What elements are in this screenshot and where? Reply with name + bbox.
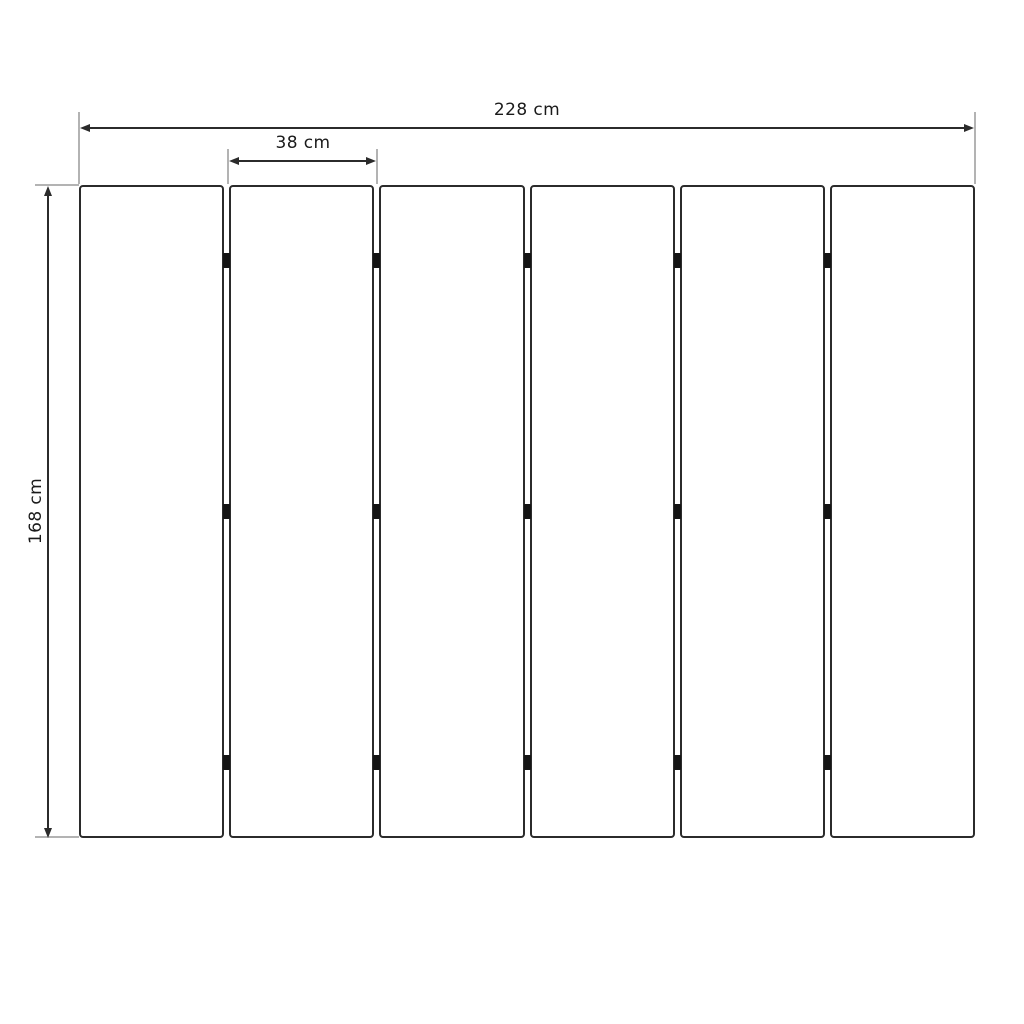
extension-line-right: [974, 112, 976, 184]
dimension-label-panel-width: 38 cm: [228, 133, 378, 153]
hinge-mark: [824, 504, 831, 519]
hinge-mark: [674, 253, 681, 268]
hinge-mark: [824, 253, 831, 268]
extension-line-left: [78, 112, 80, 184]
arrowhead-left-icon: [229, 157, 239, 165]
extension-line-bottom: [35, 836, 79, 838]
dimension-line-total-width: [84, 127, 970, 129]
hinge-mark: [373, 755, 380, 770]
arrowhead-down-icon: [44, 828, 52, 838]
hinge-mark: [524, 755, 531, 770]
hinge-mark: [824, 755, 831, 770]
hinge-mark: [223, 253, 230, 268]
hinge-mark: [373, 504, 380, 519]
hinge-mark: [674, 504, 681, 519]
dimension-line-panel-width: [233, 160, 372, 162]
arrowhead-left-icon: [80, 124, 90, 132]
panel-6: [830, 185, 975, 838]
hinge-mark: [373, 253, 380, 268]
hinge-mark: [674, 755, 681, 770]
panel-3: [379, 185, 524, 838]
hinge-mark: [524, 253, 531, 268]
hinge-mark: [223, 755, 230, 770]
extension-line-right: [376, 149, 378, 184]
dimension-label-height: 168 cm: [24, 431, 48, 591]
panel-dimension-drawing: 228 cm 38 cm 168 cm: [0, 0, 1024, 1024]
hinge-mark: [223, 504, 230, 519]
dimension-label-total-width: 228 cm: [427, 100, 627, 120]
panel-1: [79, 185, 224, 838]
extension-line-top: [35, 184, 79, 186]
panel-4: [530, 185, 675, 838]
arrowhead-right-icon: [366, 157, 376, 165]
arrowhead-right-icon: [964, 124, 974, 132]
extension-line-left: [227, 149, 229, 184]
panel-2: [229, 185, 374, 838]
panel-5: [680, 185, 825, 838]
arrowhead-up-icon: [44, 186, 52, 196]
hinge-mark: [524, 504, 531, 519]
